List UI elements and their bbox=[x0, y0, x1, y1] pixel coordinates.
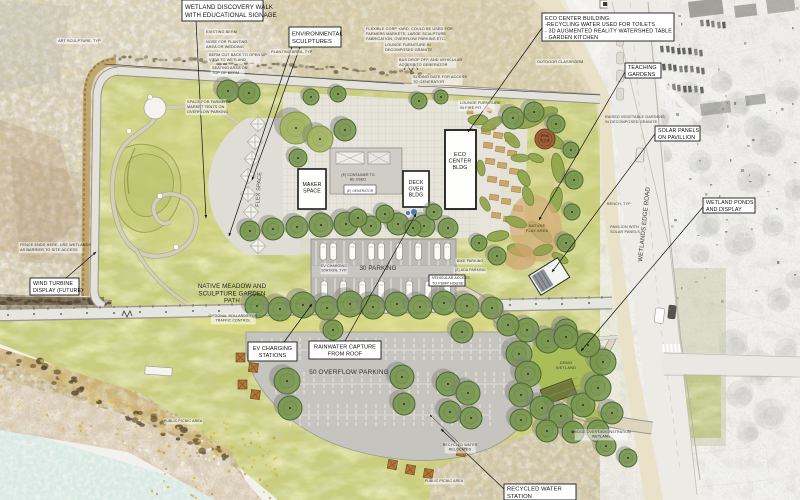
svg-text:ECO CENTER BUILDING:: ECO CENTER BUILDING: bbox=[545, 16, 611, 22]
svg-text:TO PUMP HOUSE: TO PUMP HOUSE bbox=[432, 281, 464, 285]
svg-text:CENTER: CENTER bbox=[449, 159, 472, 165]
svg-text:BERM CUT BACK TO OPEN UP: BERM CUT BACK TO OPEN UP bbox=[209, 53, 267, 57]
svg-text:SLIDING GATE FOR ACCESS: SLIDING GATE FOR ACCESS bbox=[413, 75, 467, 79]
svg-text:PATH: PATH bbox=[224, 298, 240, 305]
svg-text:DISPLAY (FUTURE): DISPLAY (FUTURE) bbox=[33, 288, 83, 294]
svg-text:SCULPTURES: SCULPTURES bbox=[292, 39, 332, 45]
svg-text:RECYCLED WATER: RECYCLED WATER bbox=[443, 443, 478, 447]
svg-text:PUBLIC PICNIC AREA: PUBLIC PICNIC AREA bbox=[164, 419, 203, 423]
svg-text:FABRICATION, OVERFLOW PARKING: FABRICATION, OVERFLOW PARKING ETC. bbox=[366, 37, 446, 41]
svg-text:EV CHARGING: EV CHARGING bbox=[321, 264, 347, 268]
svg-text:BE USED: BE USED bbox=[350, 178, 366, 182]
svg-text:AND DISPLAY: AND DISPLAY bbox=[706, 207, 742, 213]
svg-text:SOLAR PANELS: SOLAR PANELS bbox=[658, 128, 700, 134]
svg-text:RELOCATED: RELOCATED bbox=[449, 448, 472, 452]
svg-text:OPTIONAL BOLLARDS FOR: OPTIONAL BOLLARDS FOR bbox=[209, 314, 258, 318]
svg-text:ACCESS TO GENERATOR: ACCESS TO GENERATOR bbox=[399, 63, 448, 67]
svg-text:WETLAND DISCOVERY WALK: WETLAND DISCOVERY WALK bbox=[185, 4, 273, 11]
svg-text:CONE: CONE bbox=[540, 139, 551, 143]
svg-text:MARKET TENTS ON: MARKET TENTS ON bbox=[187, 105, 225, 109]
svg-text:BLDG: BLDG bbox=[452, 165, 467, 171]
svg-text:EV CHARGING: EV CHARGING bbox=[253, 346, 293, 352]
svg-text:PLAY AREA: PLAY AREA bbox=[526, 228, 549, 233]
svg-text:ENVIRONMENTAL: ENVIRONMENTAL bbox=[292, 32, 343, 38]
svg-text:RAISED VEGETABLE GARDENS: RAISED VEGETABLE GARDENS bbox=[605, 115, 665, 119]
svg-text:(E) CONTAINER TO: (E) CONTAINER TO bbox=[341, 173, 374, 177]
svg-text:RECYCLED WATER: RECYCLED WATER bbox=[507, 487, 562, 493]
svg-text:BIKE PARKING: BIKE PARKING bbox=[457, 259, 483, 263]
svg-text:PLANTING AREA, TYP: PLANTING AREA, TYP bbox=[271, 50, 313, 54]
svg-text:-RECYCLING WATER USED FOR TOIL: -RECYCLING WATER USED FOR TOILETS bbox=[545, 22, 655, 28]
svg-text:BENCH, TYP: BENCH, TYP bbox=[607, 202, 631, 206]
svg-text:BLDG: BLDG bbox=[409, 193, 424, 199]
svg-text:ON PAVILLION: ON PAVILLION bbox=[658, 135, 695, 141]
svg-text:50 OVERFLOW PARKING: 50 OVERFLOW PARKING bbox=[309, 369, 389, 376]
svg-text:IN FIRE PIT: IN FIRE PIT bbox=[460, 106, 482, 110]
svg-text:30 PARKING: 30 PARKING bbox=[360, 265, 397, 272]
svg-text:WETLAND: WETLAND bbox=[556, 365, 576, 370]
svg-text:TEACHING: TEACHING bbox=[628, 65, 657, 71]
svg-text:ART SCULPTURE, TYP: ART SCULPTURE, TYP bbox=[58, 39, 101, 43]
svg-text:TOP OF BERM: TOP OF BERM bbox=[212, 71, 239, 75]
svg-text:IN DECOMPOSED GRANITE: IN DECOMPOSED GRANITE bbox=[605, 120, 658, 124]
svg-text:PAVILION WITH: PAVILION WITH bbox=[610, 225, 639, 229]
svg-text:SOLAR PANELS: SOLAR PANELS bbox=[610, 230, 640, 234]
svg-text:(E) GENERATOR: (E) GENERATOR bbox=[347, 189, 374, 193]
svg-text:TRAFFIC CONTROL: TRAFFIC CONTROL bbox=[215, 319, 250, 323]
svg-text:PINE: PINE bbox=[541, 134, 550, 138]
svg-text:NOSE FOR PLANTING: NOSE FOR PLANTING bbox=[206, 40, 248, 44]
svg-text:WITH EDUCATIONAL SIGNAGE: WITH EDUCATIONAL SIGNAGE bbox=[185, 12, 277, 19]
svg-text:WETLAND: WETLAND bbox=[592, 435, 611, 439]
svg-text:WETLAND PONDS: WETLAND PONDS bbox=[706, 200, 754, 206]
svg-text:STATION, TYP: STATION, TYP bbox=[321, 269, 347, 273]
svg-text:DECOMPOSED GRANITE: DECOMPOSED GRANITE bbox=[385, 48, 433, 52]
svg-text:- 3D AUGMENTED REALITY WATERSH: - 3D AUGMENTED REALITY WATERSHED TABLE bbox=[545, 29, 672, 35]
svg-text:STATION: STATION bbox=[507, 494, 532, 500]
svg-text:ECO: ECO bbox=[454, 152, 466, 158]
svg-text:OVERFLOW PARKING: OVERFLOW PARKING bbox=[187, 110, 228, 114]
svg-text:MAKER: MAKER bbox=[303, 182, 322, 188]
svg-text:SPACE: SPACE bbox=[303, 188, 321, 194]
svg-text:WIND TURBINE: WIND TURBINE bbox=[33, 281, 73, 287]
svg-text:DECK: DECK bbox=[409, 180, 424, 186]
svg-text:SCULPTURE GARDEN: SCULPTURE GARDEN bbox=[198, 290, 265, 297]
svg-text:FARMERS MARKETS, LARGE SCULPTU: FARMERS MARKETS, LARGE SCULPTURE bbox=[366, 32, 446, 36]
svg-text:(2) ADA PARKING: (2) ADA PARKING bbox=[455, 268, 486, 272]
svg-text:AREA OR WEDDING: AREA OR WEDDING bbox=[206, 45, 244, 49]
svg-text:EXISTING BERM: EXISTING BERM bbox=[206, 30, 237, 34]
svg-text:OUTDOOR CLASSROOM: OUTDOOR CLASSROOM bbox=[537, 60, 583, 64]
svg-text:LOUNGE FURNITURE: LOUNGE FURNITURE bbox=[460, 101, 501, 105]
svg-text:SEATING AREA ON: SEATING AREA ON bbox=[212, 66, 248, 70]
svg-text:VIEW TO WETLAND: VIEW TO WETLAND bbox=[209, 58, 246, 62]
svg-text:NATIVE MEADOW AND: NATIVE MEADOW AND bbox=[198, 283, 267, 290]
svg-text:AS BARRIER TO SITE ACCESS: AS BARRIER TO SITE ACCESS bbox=[20, 248, 78, 252]
svg-text:GARDENS: GARDENS bbox=[628, 72, 656, 78]
svg-text:TO GENERATOR: TO GENERATOR bbox=[413, 80, 444, 84]
svg-text:VEHICULAR ACCESS: VEHICULAR ACCESS bbox=[432, 276, 470, 280]
svg-text:SPACE FOR FARMER'S: SPACE FOR FARMER'S bbox=[187, 100, 231, 104]
svg-text:BUS DROP OFF, AND VEHICULAR: BUS DROP OFF, AND VEHICULAR bbox=[399, 58, 463, 62]
svg-text:LOUNGE FURNITURE IN: LOUNGE FURNITURE IN bbox=[385, 43, 431, 47]
svg-text:STATIONS: STATIONS bbox=[259, 353, 287, 359]
svg-text:FROM ROOF: FROM ROOF bbox=[328, 352, 363, 358]
svg-text:RAINWATER CAPTURE: RAINWATER CAPTURE bbox=[314, 345, 376, 351]
svg-text:FENCE ENDS HERE, USE WETLANDS: FENCE ENDS HERE, USE WETLANDS bbox=[20, 243, 91, 247]
svg-text:- GARDEN KITCHEN: - GARDEN KITCHEN bbox=[545, 35, 598, 41]
svg-text:OVER: OVER bbox=[408, 186, 423, 192]
svg-text:BRIDGE OVER DEMONSTRATION: BRIDGE OVER DEMONSTRATION bbox=[571, 430, 631, 434]
svg-text:FLEXIBLE CORP YARD, COULD BE U: FLEXIBLE CORP YARD, COULD BE USED FOR bbox=[366, 27, 453, 31]
svg-text:PUBLIC PICNIC AREA: PUBLIC PICNIC AREA bbox=[425, 479, 464, 483]
